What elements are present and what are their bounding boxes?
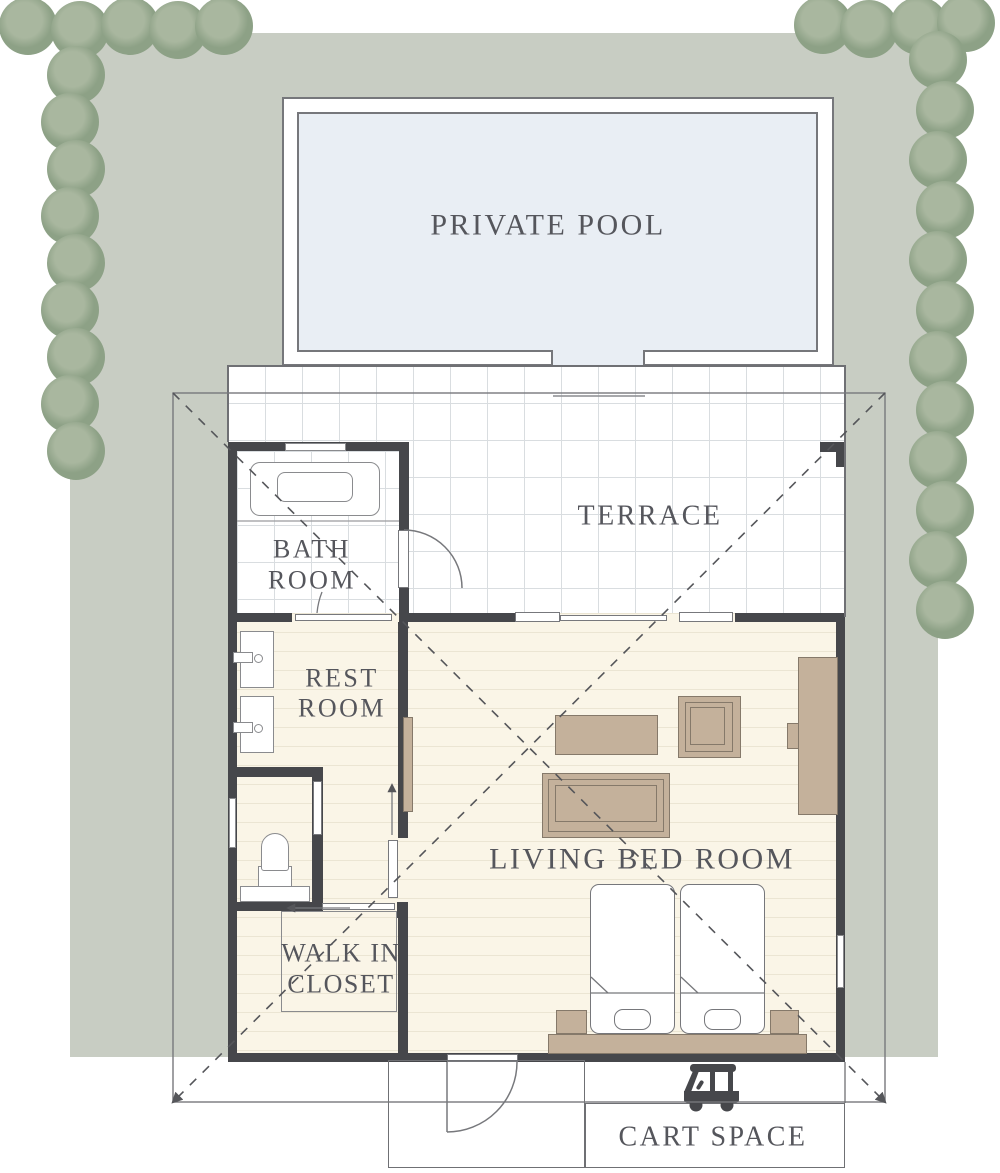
- tree-icon: [909, 531, 967, 589]
- sliding-door-panel: [679, 612, 733, 622]
- wall-console: [403, 717, 413, 812]
- wall: [228, 442, 237, 1062]
- walk-in-closet-label-2: CLOSET: [287, 969, 394, 1000]
- bath-room-label-1: BATH: [273, 534, 351, 565]
- toilet-counter: [240, 886, 310, 902]
- bed-headboard-platform: [548, 1034, 807, 1054]
- bathroom-door-leaf: [398, 530, 409, 588]
- tree-icon: [916, 181, 974, 239]
- wall: [836, 442, 845, 467]
- toilet-door-leaf: [313, 781, 322, 835]
- bathtub-basin: [277, 472, 353, 502]
- living-bed-room-label: LIVING BED ROOM: [489, 844, 795, 875]
- tree-icon: [916, 81, 974, 139]
- tv-console: [798, 657, 838, 815]
- tree-icon: [0, 0, 57, 55]
- wall: [398, 902, 408, 1062]
- entry-porch: [388, 1060, 585, 1168]
- tree-icon: [909, 131, 967, 189]
- sliding-door-panel: [560, 615, 667, 621]
- pillow: [704, 1009, 741, 1030]
- tree-icon: [909, 331, 967, 389]
- sink-drain: [254, 654, 263, 663]
- armchair-seat: [690, 707, 725, 745]
- window: [285, 443, 346, 451]
- golf-cart-icon: [683, 1064, 743, 1112]
- faucet: [233, 722, 253, 733]
- tree-icon: [909, 231, 967, 289]
- tv: [787, 723, 799, 749]
- sofa-seat: [555, 785, 657, 822]
- wall: [228, 902, 322, 911]
- tree-icon: [916, 281, 974, 339]
- wall: [735, 613, 845, 622]
- cart-space-label: CART SPACE: [618, 1122, 807, 1153]
- tree-icon: [916, 481, 974, 539]
- tree-icon: [916, 381, 974, 439]
- private-pool-label: PRIVATE POOL: [430, 210, 665, 241]
- tree-icon: [916, 581, 974, 639]
- walk-in-closet-label-1: WALK IN: [281, 938, 401, 969]
- wall: [228, 613, 292, 622]
- terrace-label: TERRACE: [577, 501, 722, 532]
- nightstand: [556, 1010, 587, 1034]
- closet-sliding-door: [322, 903, 395, 910]
- window: [229, 798, 236, 848]
- wall: [228, 767, 312, 777]
- sliding-door-panel: [515, 612, 560, 622]
- rest-room-label-2: ROOM: [298, 693, 386, 724]
- coffee-table: [555, 715, 658, 755]
- restroom-sliding-door: [295, 614, 392, 621]
- floor-plan: PRIVATE POOL TERRACE BATH ROOM REST ROOM…: [0, 0, 1000, 1173]
- tree-icon: [909, 31, 967, 89]
- sink-drain: [254, 724, 263, 733]
- pillow: [614, 1009, 651, 1030]
- pocket-door-leaf: [388, 840, 398, 898]
- toilet-bowl: [261, 833, 289, 871]
- tree-icon: [47, 422, 105, 480]
- wall: [399, 442, 409, 530]
- rest-room-label-1: REST: [305, 663, 379, 694]
- faucet: [233, 652, 253, 663]
- nightstand: [770, 1010, 799, 1034]
- bath-room-label-2: ROOM: [268, 565, 356, 596]
- wall: [399, 613, 515, 622]
- tree-icon: [909, 431, 967, 489]
- window: [837, 935, 844, 988]
